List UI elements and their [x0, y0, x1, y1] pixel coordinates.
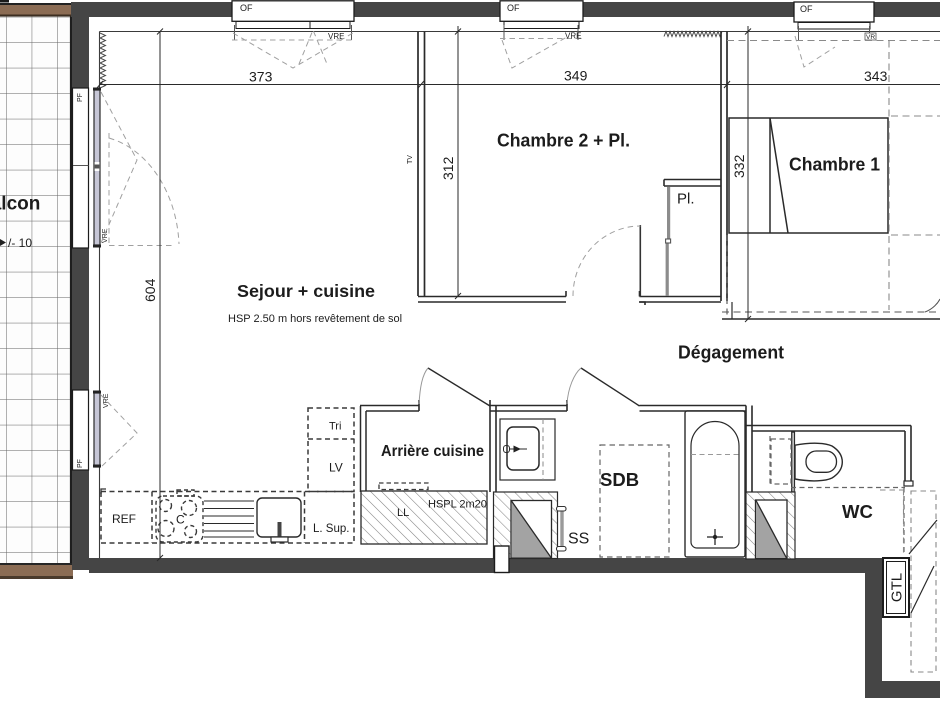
- svg-text:/- 10: /- 10: [8, 236, 32, 250]
- svg-text:OF: OF: [507, 3, 520, 13]
- svg-text:343: 343: [864, 68, 888, 84]
- svg-text:Pl.: Pl.: [677, 191, 695, 208]
- svg-text:PF: PF: [77, 459, 84, 468]
- svg-text:HSPL 2m20: HSPL 2m20: [428, 499, 487, 511]
- svg-text:HSP 2.50 m hors revêtement de: HSP 2.50 m hors revêtement de sol: [228, 313, 402, 325]
- svg-text:349: 349: [564, 68, 588, 84]
- svg-text:Balcon: Balcon: [0, 194, 40, 215]
- svg-text:VRE: VRE: [565, 32, 581, 41]
- svg-text:Arrière cuisine: Arrière cuisine: [381, 443, 484, 460]
- svg-text:TV: TV: [407, 155, 414, 164]
- svg-text:PF: PF: [77, 93, 84, 102]
- svg-text:OF: OF: [240, 3, 253, 13]
- svg-text:Dégagement: Dégagement: [678, 343, 784, 363]
- svg-text:312: 312: [440, 156, 456, 180]
- svg-text:332: 332: [731, 154, 747, 178]
- svg-text:Chambre 1: Chambre 1: [789, 155, 880, 175]
- svg-text:WC: WC: [842, 501, 873, 522]
- svg-text:OF: OF: [800, 4, 813, 14]
- svg-text:LL: LL: [397, 507, 409, 519]
- svg-text:GTL: GTL: [889, 573, 906, 602]
- svg-text:604: 604: [142, 278, 158, 302]
- svg-text:VRE: VRE: [103, 393, 110, 408]
- svg-text:373: 373: [249, 69, 273, 85]
- svg-text:Chambre 2 + Pl.: Chambre 2 + Pl.: [497, 130, 630, 151]
- svg-text:VRE: VRE: [102, 228, 109, 243]
- svg-text:L. Sup.: L. Sup.: [313, 523, 349, 535]
- svg-text:Tri: Tri: [329, 421, 341, 433]
- svg-text:LV: LV: [329, 461, 343, 475]
- svg-text:C: C: [176, 513, 185, 527]
- svg-text:SS: SS: [568, 531, 589, 548]
- svg-text:SDB: SDB: [600, 469, 639, 490]
- svg-text:Sejour + cuisine: Sejour + cuisine: [237, 281, 375, 301]
- svg-text:REF: REF: [112, 512, 136, 526]
